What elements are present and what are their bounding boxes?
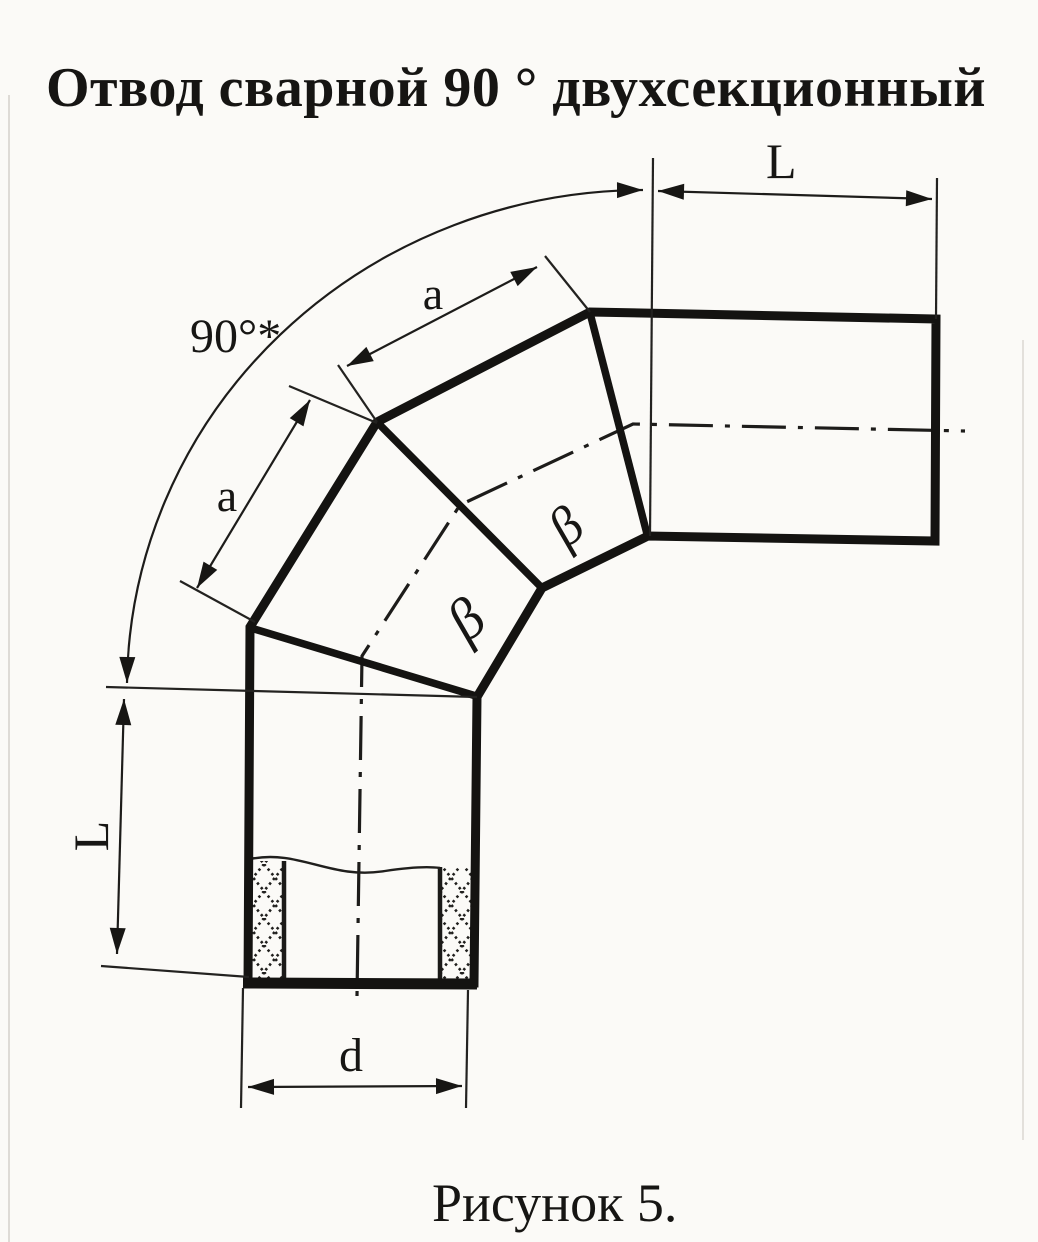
figure-caption: Рисунок 5. — [432, 1172, 677, 1234]
elbow-outline — [243, 312, 936, 984]
ext-line-pipe-end-right — [936, 178, 937, 319]
label-angle-90: 90°* — [190, 310, 281, 363]
dim-line-d — [248, 1086, 462, 1087]
elbow-technical-drawing: L L a a 90°* d β β — [0, 0, 1038, 1242]
pipe-end-edge — [243, 983, 477, 984]
ext-line-inner-corner-vertical — [650, 158, 653, 536]
label-a-upper: a — [423, 268, 443, 319]
ext-line-a-upper-left — [338, 365, 377, 422]
ext-line-a-lower-bottom — [180, 581, 255, 622]
ext-line-pipe-end-bottom — [101, 966, 249, 977]
label-a-lower: a — [217, 470, 237, 521]
ext-line-inner-corner-horizontal — [106, 687, 477, 697]
label-beta-upper: β — [535, 495, 595, 559]
dim-arc-90deg — [127, 190, 643, 683]
pipe-wall-section-hatch — [250, 857, 471, 981]
ext-line-a-upper-right — [545, 256, 590, 312]
weld-seam-middle — [378, 423, 541, 587]
ext-line-d-left — [241, 988, 243, 1108]
label-L-left: L — [63, 821, 119, 852]
ext-line-d-right — [466, 990, 468, 1108]
dim-line-L-top — [658, 191, 932, 199]
label-L-top: L — [766, 133, 797, 189]
label-beta-lower: β — [433, 585, 498, 654]
scan-artifacts — [9, 95, 1023, 1242]
weld-seam-lower — [251, 628, 476, 696]
label-d: d — [339, 1029, 363, 1082]
